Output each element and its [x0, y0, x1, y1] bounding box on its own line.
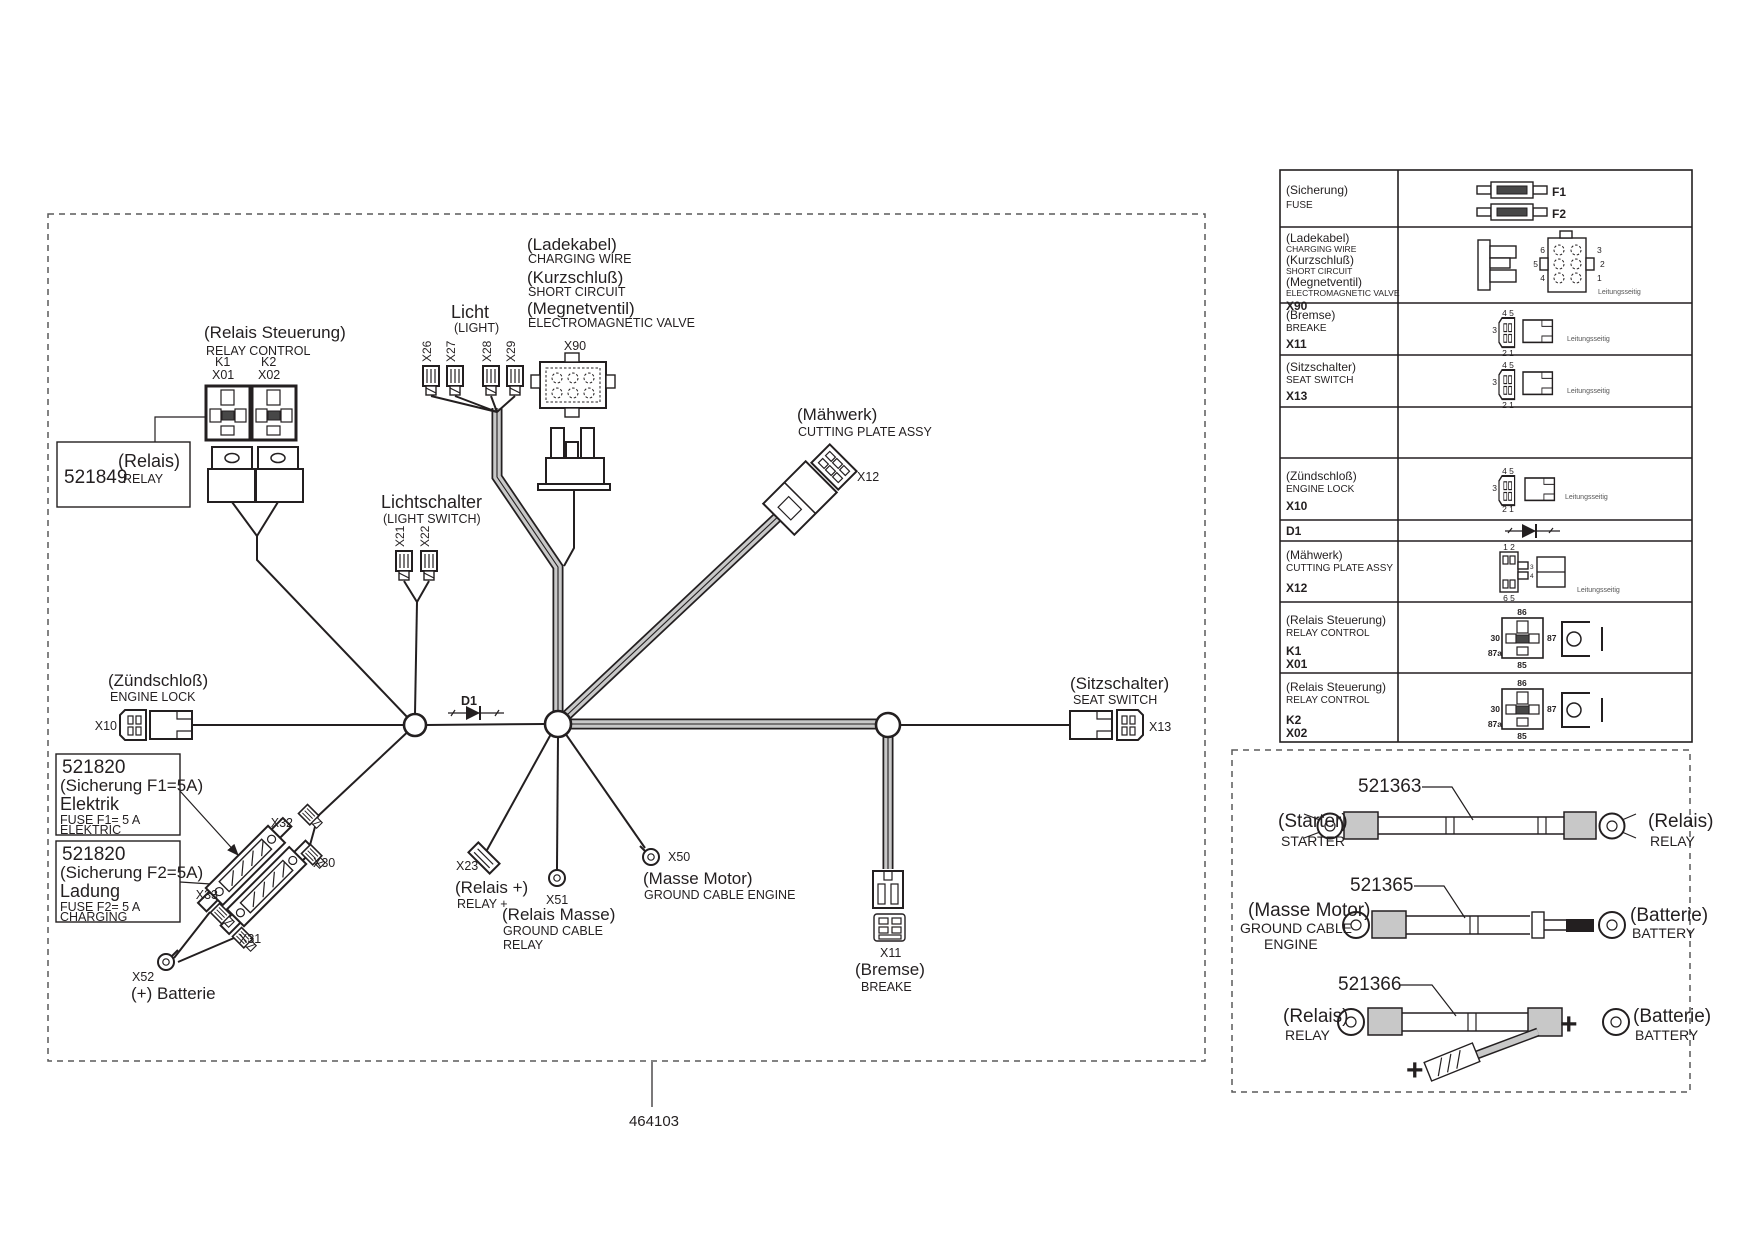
terminal-x50-ring-icon: [640, 846, 659, 865]
row8-plug-icon: [1500, 552, 1528, 592]
x90-socket-icon: [1540, 231, 1594, 292]
brake-label-de: (Bremse): [855, 960, 925, 979]
fuse1-number: 521820: [62, 757, 125, 778]
row9-pin30: 30: [1491, 633, 1501, 643]
row3-recept-icon: [1523, 320, 1552, 342]
row4-plug-icon: [1499, 370, 1515, 399]
row4-wire-side: Leitungsseitig: [1567, 388, 1610, 395]
row9-relay-body-icon: [1562, 620, 1604, 658]
connector-x10-receptacle-icon: [150, 711, 192, 739]
connector-x13-receptacle-icon: [1070, 711, 1112, 739]
fuse1-name: Elektrik: [60, 794, 120, 814]
row8-pin12: 1 2: [1503, 542, 1515, 552]
table-row-x10: (Zündschloß) ENGINE LOCK X10 4 5 3 2 1 L…: [1286, 466, 1608, 514]
cable3-drawing: [1338, 1008, 1629, 1081]
engine-lock-label-de: (Zündschloß): [108, 671, 208, 690]
row9-id: K1: [1286, 644, 1302, 658]
connector-x10-label: X10: [95, 719, 117, 733]
row3-pin45: 4 5: [1502, 308, 1514, 318]
cable-521363: 521363 (Starter) STARTER (Relais) RELAY: [1278, 776, 1713, 849]
row4-l2: SEAT SWITCH: [1286, 375, 1353, 386]
row6-plug-icon: [1499, 476, 1515, 505]
row6-pin3: 3: [1492, 483, 1497, 493]
connector-x29-icon: [507, 366, 523, 395]
row9-pin87: 87: [1547, 633, 1557, 643]
connector-x32-label: X32: [271, 816, 293, 830]
row8-pin4: 4: [1530, 573, 1534, 580]
row6-l2: ENGINE LOCK: [1286, 484, 1355, 495]
fuse2-label-de: (Sicherung F2=5A): [60, 863, 203, 882]
pin-3: 3: [1597, 245, 1602, 255]
row4-recept-icon: [1523, 372, 1552, 394]
fuse-f1-label: F1: [1552, 185, 1566, 199]
seat-switch-group: (Sitzschalter) SEAT SWITCH X13: [1070, 674, 1171, 740]
cable3-right-label-en: BATTERY: [1635, 1027, 1699, 1043]
relay-body-k1-icon: [208, 447, 255, 502]
engine-ground-group: X50 (Masse Motor) GROUND CABLE ENGINE: [640, 846, 795, 902]
cable3-leader: [1400, 985, 1456, 1016]
row10-pin87a: 87a: [1488, 719, 1502, 729]
fuse1-label-en2: ELEKTRIC: [60, 823, 121, 837]
cable1-left-label-en: STARTER: [1281, 833, 1345, 849]
charging-label-en: CHARGING WIRE: [528, 252, 631, 266]
row1-label-de: (Sicherung): [1286, 183, 1348, 197]
diagram-canvas: (Relais Steuerung) RELAY CONTROL K1 K2 X…: [0, 0, 1754, 1240]
row10-l2: RELAY CONTROL: [1286, 695, 1370, 706]
relay-plus-label-de: (Relais +): [455, 878, 528, 897]
cable2-left-label-en1: GROUND CABLE: [1240, 920, 1352, 936]
pin-5: 5: [1533, 259, 1538, 269]
terminal-x51-ring-icon: [549, 864, 565, 886]
connector-x26-label: X26: [420, 340, 434, 362]
row8-l1: (Mähwerk): [1286, 548, 1343, 562]
connector-x12-label: X12: [857, 470, 879, 484]
cable2-drawing: [1343, 911, 1625, 938]
cable-521365: 521365 (Masse Motor) GROUND CABLE ENGINE…: [1240, 875, 1708, 952]
row3-plug-icon: [1499, 318, 1515, 347]
row10-pin87: 87: [1547, 704, 1557, 714]
row10-relay-body-icon: [1562, 691, 1604, 729]
row8-id: X12: [1286, 581, 1308, 595]
light-group: Licht (LIGHT) X26 X27 X28 X29: [420, 302, 523, 395]
row6-id: X10: [1286, 499, 1308, 513]
cable2-leader: [1414, 886, 1465, 918]
relay-k1-label: K1: [215, 355, 230, 369]
relay-control-block: (Relais Steuerung) RELAY CONTROL K1 K2 X…: [204, 323, 346, 502]
x90-plug-icon: [1478, 240, 1516, 290]
relay-ground-label-de: (Relais Masse): [502, 905, 615, 924]
row2-l6: ELECTROMAGNETIC VALVE: [1286, 288, 1400, 298]
fuse2-box: 521820 (Sicherung F2=5A) Ladung FUSE F2=…: [56, 841, 226, 924]
connector-x10-plug-icon: [120, 710, 146, 740]
row9-id2: X01: [1286, 657, 1308, 671]
connector-x90-label: X90: [564, 339, 586, 353]
row10-id2: X02: [1286, 726, 1308, 740]
pin-6: 6: [1540, 245, 1545, 255]
wiring-diagram-page: (Relais Steuerung) RELAY CONTROL K1 K2 X…: [0, 0, 1754, 1240]
row4-id: X13: [1286, 389, 1308, 403]
pin-2: 2: [1600, 259, 1605, 269]
relay-k2-label: K2: [261, 355, 276, 369]
brake-group: X11 (Bremse) BREAKE: [855, 871, 925, 994]
row9-pin86: 86: [1517, 607, 1527, 617]
relay-ground-label-en1: GROUND CABLE: [503, 924, 603, 938]
battery-label: (+) Batterie: [131, 984, 216, 1003]
row8-wire-side: Leitungsseitig: [1577, 587, 1620, 594]
fuse1-leader: [180, 791, 238, 855]
row9-pin87a: 87a: [1488, 648, 1502, 658]
table-row-x13: (Sitzschalter) SEAT SWITCH X13 4 5 3 2 1…: [1286, 360, 1610, 410]
row9-pin85: 85: [1517, 660, 1527, 670]
engine-ground-label-en: GROUND CABLE ENGINE: [644, 888, 795, 902]
row3-wire-side: Leitungsseitig: [1567, 336, 1610, 343]
relay-part-label-en: RELAY: [123, 472, 164, 486]
fuse2-name: Ladung: [60, 881, 120, 901]
brake-plug-icon: [874, 914, 905, 941]
row10-pin85: 85: [1517, 731, 1527, 741]
row3-l2: BREAKE: [1286, 323, 1327, 334]
brake-label-en: BREAKE: [861, 980, 912, 994]
pin-4: 4: [1540, 273, 1545, 283]
light-switch-label-en: (LIGHT SWITCH): [383, 512, 481, 526]
row6-pin45: 4 5: [1502, 466, 1514, 476]
connector-x26-icon: [423, 366, 439, 395]
connector-x22-label: X22: [418, 525, 432, 547]
cable-521366: 521366 + + (Relais) RELAY (Batterie) BAT…: [1283, 974, 1711, 1087]
relay-x01-label: X01: [212, 368, 234, 382]
terminal-x52-label: X52: [132, 970, 154, 984]
row4-pin21: 2 1: [1502, 400, 1514, 410]
fuse-icon: [1477, 182, 1547, 220]
relay-socket-k2-icon: [252, 386, 296, 440]
cable2-right-label-de: (Batterie): [1630, 905, 1708, 926]
row3-pin3: 3: [1492, 325, 1497, 335]
row10-pin86: 86: [1517, 678, 1527, 688]
junction-hub-right: [876, 713, 900, 737]
junction-hub-left: [404, 714, 426, 736]
row8-pin65: 6 5: [1503, 593, 1515, 603]
connector-x90-icon: [531, 353, 615, 417]
cutting-plate-group: (Mähwerk) CUTTING PLATE ASSY X12: [763, 405, 932, 535]
light-label-en: (LIGHT): [454, 321, 499, 335]
table-row-fuse: (Sicherung) FUSE F1 F2: [1286, 182, 1566, 221]
row9-relay-socket-icon: [1502, 618, 1543, 658]
light-label-de: Licht: [451, 302, 489, 322]
row2-l1: (Ladekabel): [1286, 231, 1349, 245]
connector-x21-icon: [396, 551, 412, 580]
relay-plus-label-en: RELAY +: [457, 897, 508, 911]
row6-recept-icon: [1525, 478, 1554, 500]
connector-x27-icon: [447, 366, 463, 395]
connector-x11-icon: [873, 871, 903, 908]
pin-1: 1: [1597, 273, 1602, 283]
seat-switch-label-en: SEAT SWITCH: [1073, 693, 1157, 707]
connector-x28-label: X28: [480, 340, 494, 362]
cable-assemblies-section: 521363 (Starter) STARTER (Relais) RELAY …: [1232, 750, 1713, 1092]
row4-pin45: 4 5: [1502, 360, 1514, 370]
row9-l2: RELAY CONTROL: [1286, 628, 1370, 639]
relay-ground-label-en2: RELAY: [503, 938, 544, 952]
cable1-left-label-de: (Starter): [1278, 811, 1348, 832]
row10-relay-socket-icon: [1502, 689, 1543, 729]
connector-x11-label: X11: [880, 946, 901, 960]
connector-x22-icon: [421, 551, 437, 580]
cable2-right-label-en: BATTERY: [1632, 925, 1696, 941]
relay-x02-label: X02: [258, 368, 280, 382]
connector-x21-label: X21: [393, 525, 407, 547]
cable2-left-label-de: (Masse Motor): [1248, 900, 1370, 921]
connector-x30-label: X30: [313, 856, 335, 870]
table-row-x90: (Ladekabel) CHARGING WIRE (Kurzschluß) S…: [1286, 231, 1641, 313]
cable1-right-label-de: (Relais): [1648, 811, 1713, 832]
relay-socket-k1-icon: [206, 386, 250, 440]
table-row-x11: (Bremse) BREAKE X11 4 5 3 2 1 Leitungsse…: [1286, 308, 1610, 358]
cable3-left-label-de: (Relais): [1283, 1006, 1348, 1027]
connector-x32-icon: [298, 804, 323, 829]
row4-pin3: 3: [1492, 377, 1497, 387]
solenoid-valve-icon: [538, 428, 610, 490]
cable3-plus-right: +: [1560, 1008, 1578, 1041]
cable3-number: 521366: [1338, 974, 1401, 995]
engine-ground-label-de: (Masse Motor): [643, 869, 753, 888]
fuse2-label-en2: CHARGING: [60, 910, 127, 924]
engine-lock-label-en: ENGINE LOCK: [110, 690, 196, 704]
row2-l3: (Kurzschluß): [1286, 253, 1354, 267]
cable3-right-label-de: (Batterie): [1633, 1006, 1711, 1027]
diode-d1: D1: [448, 694, 504, 720]
diode-d1-icon: [448, 706, 504, 720]
connector-table: (Sicherung) FUSE F1 F2 (Ladekabel) CHARG…: [1280, 170, 1692, 742]
engine-lock-group: (Zündschloß) ENGINE LOCK X10: [95, 671, 208, 740]
row8-recept-icon: [1537, 557, 1565, 587]
relay-plus-group: X23 (Relais +) RELAY +: [455, 842, 528, 911]
cable3-plus-branch: +: [1406, 1054, 1424, 1087]
cable2-number: 521365: [1350, 875, 1413, 896]
cable1-leader: [1422, 787, 1473, 820]
valve-label-en: ELECTROMAGNETIC VALVE: [528, 316, 695, 330]
row10-id: K2: [1286, 713, 1302, 727]
relay-control-label-de: (Relais Steuerung): [204, 323, 346, 342]
relay-body-k2-icon: [256, 447, 303, 502]
connector-x31-label: X31: [239, 932, 261, 946]
wire-side-note: Leitungsseitig: [1598, 289, 1641, 296]
row2-l5: (Megnetventil): [1286, 275, 1362, 289]
junction-hub-center: [545, 711, 571, 737]
row7-id: D1: [1286, 524, 1302, 538]
battery-terminal-group: X52 (+) Batterie: [131, 950, 216, 1003]
terminal-x52-ring-icon: [158, 950, 178, 970]
row3-l1: (Bremse): [1286, 308, 1335, 322]
diode-d1-label: D1: [461, 694, 477, 708]
table-row-k1: (Relais Steuerung) RELAY CONTROL K1 X01 …: [1286, 607, 1604, 671]
row3-id: X11: [1286, 337, 1307, 351]
row6-wire-side: Leitungsseitig: [1565, 494, 1608, 501]
fuse-f2-label: F2: [1552, 207, 1566, 221]
fuse2-number: 521820: [62, 844, 125, 865]
connector-x33-label: X33: [196, 888, 218, 902]
thin-wires: [174, 396, 1070, 962]
cutting-label-en: CUTTING PLATE ASSY: [798, 425, 932, 439]
table-row-d1: D1: [1286, 524, 1560, 538]
relay-part-leader: [155, 417, 206, 442]
cable1-right-label-en: RELAY: [1650, 833, 1696, 849]
row7-diode-icon: [1505, 524, 1560, 538]
row4-l1: (Sitzschalter): [1286, 360, 1356, 374]
row8-l2: CUTTING PLATE ASSY: [1286, 563, 1393, 574]
row10-pin30: 30: [1491, 704, 1501, 714]
cable2-left-label-en2: ENGINE: [1264, 936, 1318, 952]
row6-l1: (Zündschloß): [1286, 469, 1357, 483]
diagram-part-number: 464103: [629, 1113, 679, 1130]
light-switch-label-de: Lichtschalter: [381, 492, 482, 512]
connector-x13-label: X13: [1149, 720, 1171, 734]
fuse1-box: 521820 (Sicherung F1=5A) Elektrik FUSE F…: [56, 754, 238, 855]
terminal-x50-label: X50: [668, 850, 690, 864]
shortcircuit-label-en: SHORT CIRCUIT: [528, 285, 626, 299]
table-row-x12: (Mähwerk) CUTTING PLATE ASSY X12 1 2 3 4…: [1286, 542, 1620, 603]
row9-l1: (Relais Steuerung): [1286, 613, 1386, 627]
relay-part-box: 521849 (Relais) RELAY: [57, 417, 206, 507]
relay-part-label-de: (Relais): [118, 451, 180, 471]
connector-x27-label: X27: [444, 340, 458, 362]
connector-x29-label: X29: [504, 340, 518, 362]
row3-pin21: 2 1: [1502, 348, 1514, 358]
seat-switch-label-de: (Sitzschalter): [1070, 674, 1169, 693]
cable1-number: 521363: [1358, 776, 1421, 797]
connector-x28-icon: [483, 366, 499, 395]
table-row-k2: (Relais Steuerung) RELAY CONTROL K2 X02 …: [1286, 678, 1604, 741]
light-switch-group: Lichtschalter (LIGHT SWITCH) X21 X22: [381, 492, 482, 580]
connector-x23-label: X23: [456, 859, 478, 873]
row1-label-en: FUSE: [1286, 200, 1313, 211]
row8-pin3: 3: [1530, 564, 1534, 571]
connector-x13-plug-icon: [1117, 710, 1143, 740]
charging-wire-group: (Ladekabel) CHARGING WIRE (Kurzschluß) S…: [527, 235, 695, 490]
cable3-left-label-en: RELAY: [1285, 1027, 1331, 1043]
cutting-label-de: (Mähwerk): [797, 405, 877, 424]
main-harness-section: (Relais Steuerung) RELAY CONTROL K1 K2 X…: [48, 214, 1205, 1130]
row10-l1: (Relais Steuerung): [1286, 680, 1386, 694]
